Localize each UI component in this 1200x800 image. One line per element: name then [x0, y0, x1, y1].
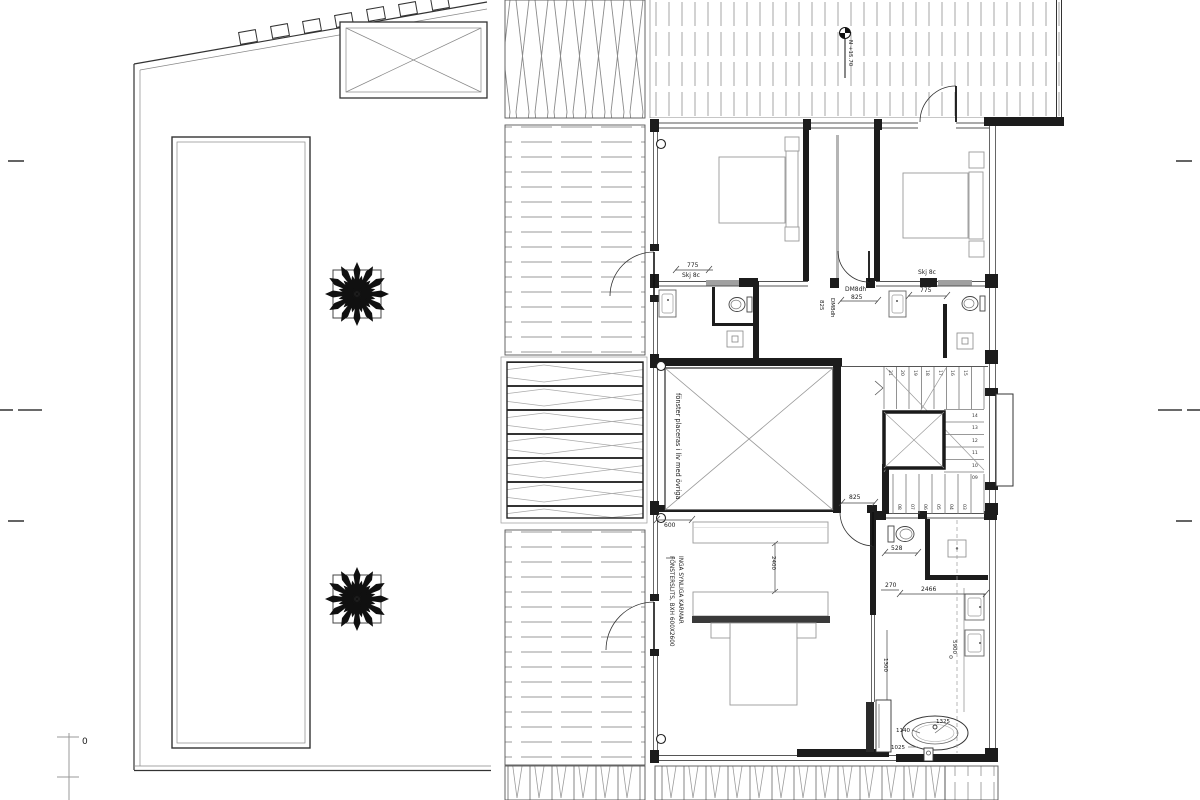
- scale-zero: 0: [82, 737, 88, 747]
- open-void: [665, 368, 833, 510]
- stair-num: 04: [948, 504, 954, 510]
- stair-num: 19: [912, 370, 918, 376]
- stair-num: 21: [887, 370, 893, 376]
- stair-num: 07: [909, 504, 915, 510]
- dim-2400: 2400: [770, 556, 776, 570]
- label-dm8dh-rotated: DM8dh: [829, 298, 835, 318]
- pool: [172, 137, 310, 748]
- dim-270: 270: [885, 582, 897, 589]
- stair-num: 17: [937, 370, 943, 376]
- dim-825-hall: 825: [849, 494, 861, 501]
- note-window-slit-2: INGA SYNLIGA KARMAR: [677, 556, 683, 624]
- dim-1025: 1025: [891, 745, 905, 751]
- dim-775-left: 775: [687, 262, 699, 269]
- planter-trees: [325, 262, 389, 631]
- stair-num: 03: [961, 504, 967, 510]
- stair-num: 11: [972, 450, 978, 456]
- dim-600: 600: [664, 522, 676, 529]
- label-dm8dh: DM8dh: [845, 286, 866, 293]
- dim-1325: 1325: [936, 719, 950, 725]
- dim-825-corridor: 825: [851, 294, 863, 301]
- stair-num: 20: [899, 370, 905, 376]
- stair-num: 13: [972, 425, 978, 431]
- level-marker-text: N +15.70: [847, 40, 853, 67]
- note-window-slit-1: FÖNSTERSLITS, BXH 600X2600: [668, 556, 675, 647]
- stair-num: 05: [935, 504, 941, 510]
- stair-num: 10: [972, 463, 978, 469]
- label-skj-right: Skj 8c: [918, 269, 936, 276]
- dim-2466: 2466: [921, 586, 936, 593]
- stair-num: 06: [922, 504, 928, 510]
- dim-528: 528: [891, 545, 903, 552]
- stair-num: 12: [972, 438, 978, 444]
- stair-num: 08: [896, 504, 902, 510]
- dim-1140: 1140: [896, 728, 910, 734]
- floor-plan-sheet: N +15.70: [0, 0, 1200, 800]
- dim-775-right: 775: [920, 287, 932, 294]
- roof-skylight: [340, 22, 487, 98]
- stair-num: 18: [924, 370, 930, 376]
- roof-terrace: [650, 0, 1062, 118]
- floor-plan-drawing: N +15.70: [0, 0, 1200, 800]
- label-skj-left: Skj 8c: [682, 272, 700, 279]
- stair-void: [884, 412, 944, 468]
- dim-825-rotated: 825: [818, 300, 824, 311]
- dim-1300: 1300: [882, 658, 888, 672]
- stair-num: 16: [949, 370, 955, 376]
- stair-num: 09: [972, 475, 978, 481]
- stair-num: 15: [962, 370, 968, 376]
- dim-5900: 5900: [951, 640, 957, 654]
- stair-num: 14: [972, 413, 978, 419]
- note-window-alignment: fönster placeras i liv med övriga: [674, 393, 682, 500]
- shaft: [996, 394, 1013, 486]
